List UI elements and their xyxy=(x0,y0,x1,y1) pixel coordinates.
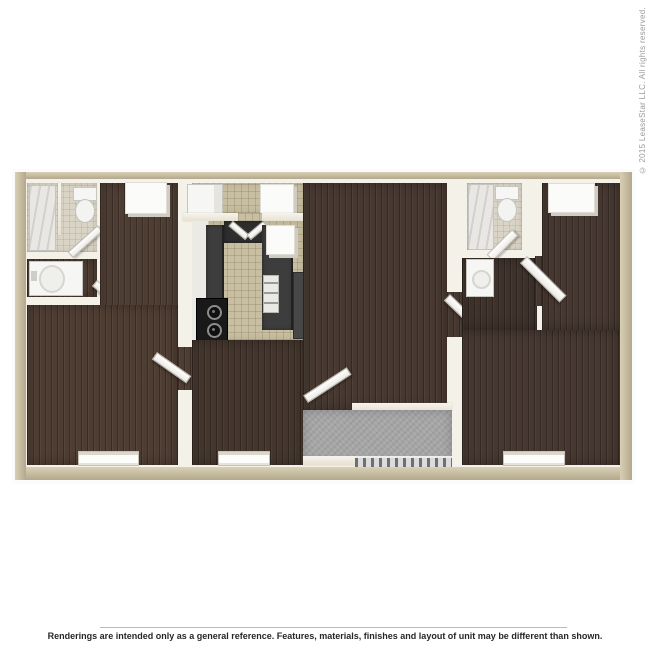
stove-burner-1 xyxy=(207,305,222,320)
kitchen-wall-stub-left xyxy=(183,213,238,221)
vanity-sink xyxy=(39,265,65,293)
shower-divider-wall xyxy=(58,183,61,235)
outer-wall-right xyxy=(620,172,632,480)
copyright-watermark: © 2015 LeaseStar LLC. All rights reserve… xyxy=(638,7,647,174)
stove xyxy=(196,298,228,342)
oven xyxy=(263,275,279,313)
shower-2 xyxy=(468,184,494,250)
divider-line xyxy=(100,627,567,628)
toilet-2-bowl xyxy=(497,198,517,222)
living-room xyxy=(303,183,447,410)
patio-railing xyxy=(355,456,452,467)
bedroom-2-lower xyxy=(462,330,620,465)
washer-dryer xyxy=(187,184,223,214)
patio-wall-left xyxy=(303,456,355,465)
window-bedroom-1 xyxy=(78,451,139,466)
window-bedroom-2 xyxy=(503,451,565,466)
outer-wall-bottom xyxy=(15,467,632,480)
closet-bedroom-2 xyxy=(548,183,595,213)
kitchen-wall-stub-right xyxy=(262,213,303,221)
washer-door xyxy=(472,270,491,289)
stove-burner-2 xyxy=(207,323,222,338)
closet-bedroom-1 xyxy=(125,182,167,214)
disclaimer-text: Renderings are intended only as a genera… xyxy=(0,631,650,641)
outer-wall-left xyxy=(15,172,26,480)
vanity-room xyxy=(27,259,97,297)
kitchen-passage xyxy=(238,213,262,221)
dining-room xyxy=(192,340,303,465)
bedroom-1-lower xyxy=(27,305,178,465)
toilet-1-bowl xyxy=(75,199,95,223)
laundry-unit-2 xyxy=(466,259,494,297)
kitchen xyxy=(192,221,303,340)
window-dining xyxy=(218,451,270,466)
faucet xyxy=(31,271,37,281)
cabinet-right-upper xyxy=(266,225,295,255)
cabinet-nook xyxy=(260,184,294,214)
floor-plan-rendering: © 2015 LeaseStar LLC. All rights reserve… xyxy=(0,0,650,650)
outer-wall-top xyxy=(15,172,632,179)
bathtub-1 xyxy=(29,185,56,251)
floor-plan xyxy=(15,172,632,480)
